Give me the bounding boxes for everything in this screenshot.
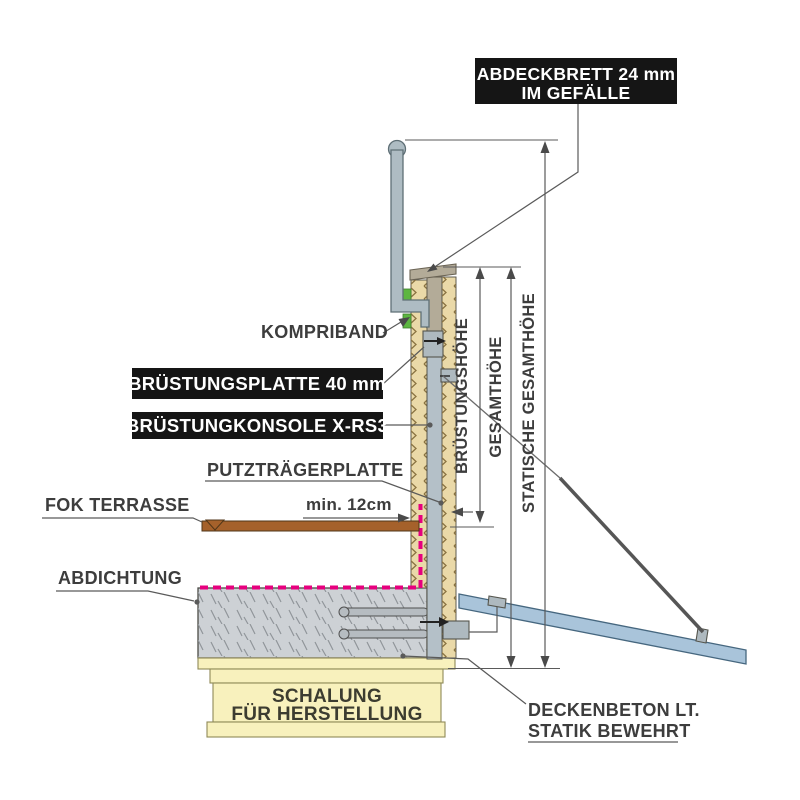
kompriband-strip-upper bbox=[403, 289, 411, 300]
leader-dot bbox=[194, 599, 199, 604]
leader-dot bbox=[427, 422, 432, 427]
terrace-floor-bar bbox=[202, 521, 419, 531]
abdichtung-label: ABDICHTUNG bbox=[58, 568, 182, 588]
abdeckbrett-label-line2: IM GEFÄLLE bbox=[522, 83, 631, 103]
abdeckbrett-label-line1: ABDECKBRETT 24 mm bbox=[477, 64, 676, 84]
anchor-head-upper bbox=[339, 607, 349, 617]
bruestungshoehe-label: BRÜSTUNGSHÖHE bbox=[452, 318, 471, 474]
min-12cm-label: min. 12cm bbox=[306, 495, 392, 514]
anchor-head-lower bbox=[339, 629, 349, 639]
anchor-rod-lower bbox=[340, 630, 428, 638]
kompriband-label: KOMPRIBAND bbox=[261, 322, 388, 342]
leader-dot bbox=[400, 653, 405, 658]
detail-section-svg: ABDECKBRETT 24 mm IM GEFÄLLE KOMPRIBAND … bbox=[0, 0, 800, 800]
concrete-slab bbox=[198, 588, 456, 658]
putztraegerplatte-label: PUTZTRÄGERPLATTE bbox=[207, 460, 403, 480]
deckenbeton-label-line1: DECKENBETON LT. bbox=[528, 700, 700, 720]
bruestungsplatte-label: BRÜSTUNGSPLATTE 40 mm bbox=[128, 373, 386, 394]
fok-terrasse-label: FOK TERRASSE bbox=[45, 495, 190, 515]
formwork-board-top bbox=[198, 658, 455, 669]
console-bracket bbox=[443, 621, 469, 639]
plate-clamp bbox=[423, 331, 443, 357]
anchor-rod-upper bbox=[340, 608, 428, 616]
terrace-floor bbox=[202, 520, 419, 531]
slab-hatch bbox=[198, 588, 427, 658]
statische-gesamthoehe-label: STATISCHE GESAMTHÖHE bbox=[519, 293, 538, 513]
construction-detail-drawing: ABDECKBRETT 24 mm IM GEFÄLLE KOMPRIBAND … bbox=[0, 0, 800, 800]
gesamthoehe-label: GESAMTHÖHE bbox=[486, 336, 505, 457]
bruestungskonsole-label: BRÜSTUNGKONSOLE X-RS3 bbox=[126, 415, 388, 436]
schalung-label-line2: FÜR HERSTELLUNG bbox=[231, 704, 422, 725]
leader-dot bbox=[438, 500, 443, 505]
formwork-spacer bbox=[210, 669, 443, 683]
deckenbeton-label-line2: STATIK BEWEHRT bbox=[528, 721, 691, 741]
